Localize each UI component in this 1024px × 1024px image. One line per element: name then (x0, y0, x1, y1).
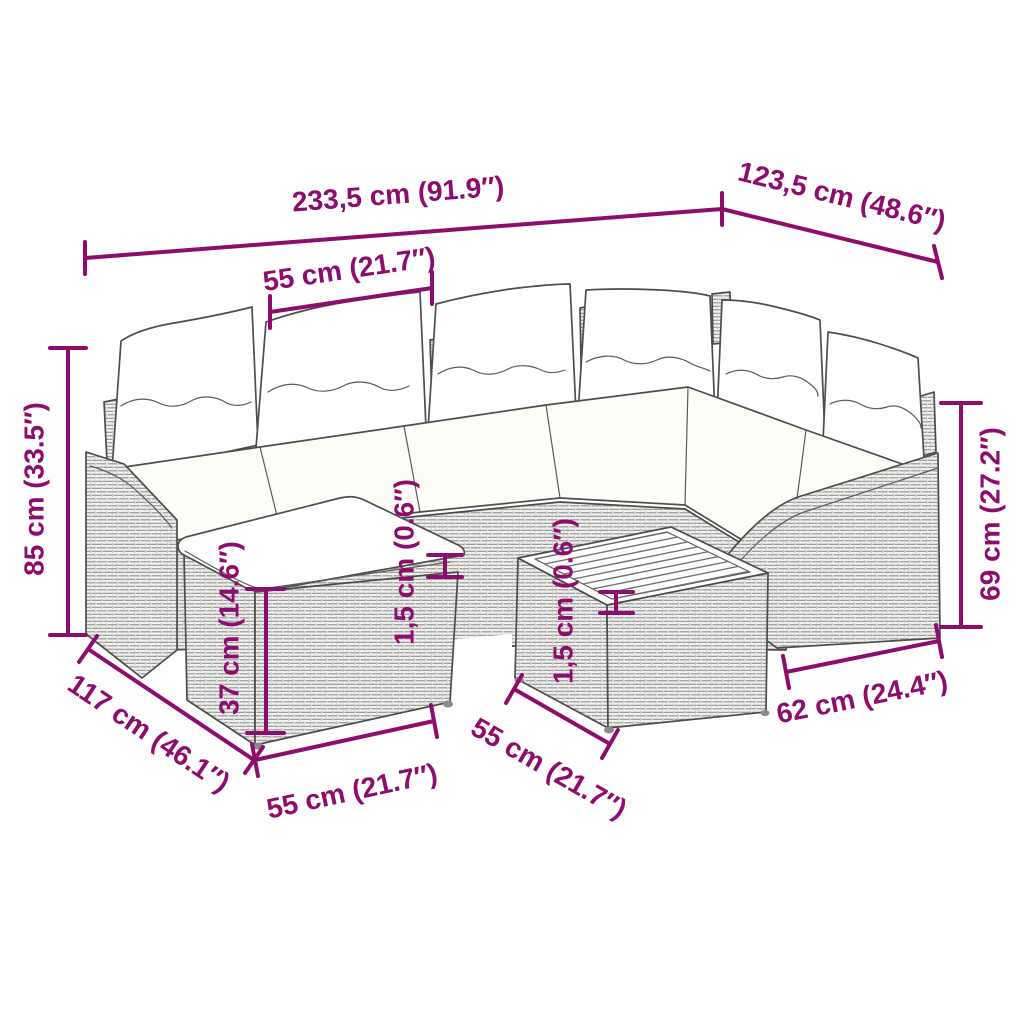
dim-label-cushion-thickness: 1,5 cm (0.6″) (389, 479, 420, 645)
dim-label-total-width: 233,5 cm (91.9″) (291, 170, 505, 217)
dim-armrest-height: 69 cm (27.2″) (941, 403, 1006, 627)
dim-overall-height: 85 cm (33.5″) (19, 348, 87, 635)
dim-label-footstool-height: 37 cm (14.6″) (214, 541, 245, 715)
dim-label-armrest-section-width: 62 cm (24.4″) (774, 665, 950, 730)
table-foot (604, 727, 614, 734)
dim-label-overall-height: 85 cm (33.5″) (19, 402, 50, 576)
product-dimension-diagram: 233,5 cm (91.9″) 123,5 cm (48.6″) 55 cm … (0, 0, 1024, 1024)
garden-sofa-set-drawing: 233,5 cm (91.9″) 123,5 cm (48.6″) 55 cm … (0, 0, 1024, 1024)
footstool-front-face (255, 572, 458, 745)
back-pillow (256, 292, 426, 448)
dim-label-footstool-width: 55 cm (21.7″) (264, 757, 440, 824)
footstool-foot (443, 701, 453, 708)
dim-label-right-depth: 123,5 cm (48.6″) (735, 156, 949, 237)
back-pillow (112, 307, 258, 470)
platform-recess (448, 634, 512, 680)
table-foot (761, 710, 770, 716)
dim-label-seat-width: 55 cm (21.7″) (261, 241, 437, 297)
dim-right-depth: 123,5 cm (48.6″) (722, 156, 949, 278)
dim-label-armrest-height: 69 cm (27.2″) (975, 427, 1006, 601)
dim-label-tabletop-thickness: 1,5 cm (0.6″) (548, 518, 579, 684)
